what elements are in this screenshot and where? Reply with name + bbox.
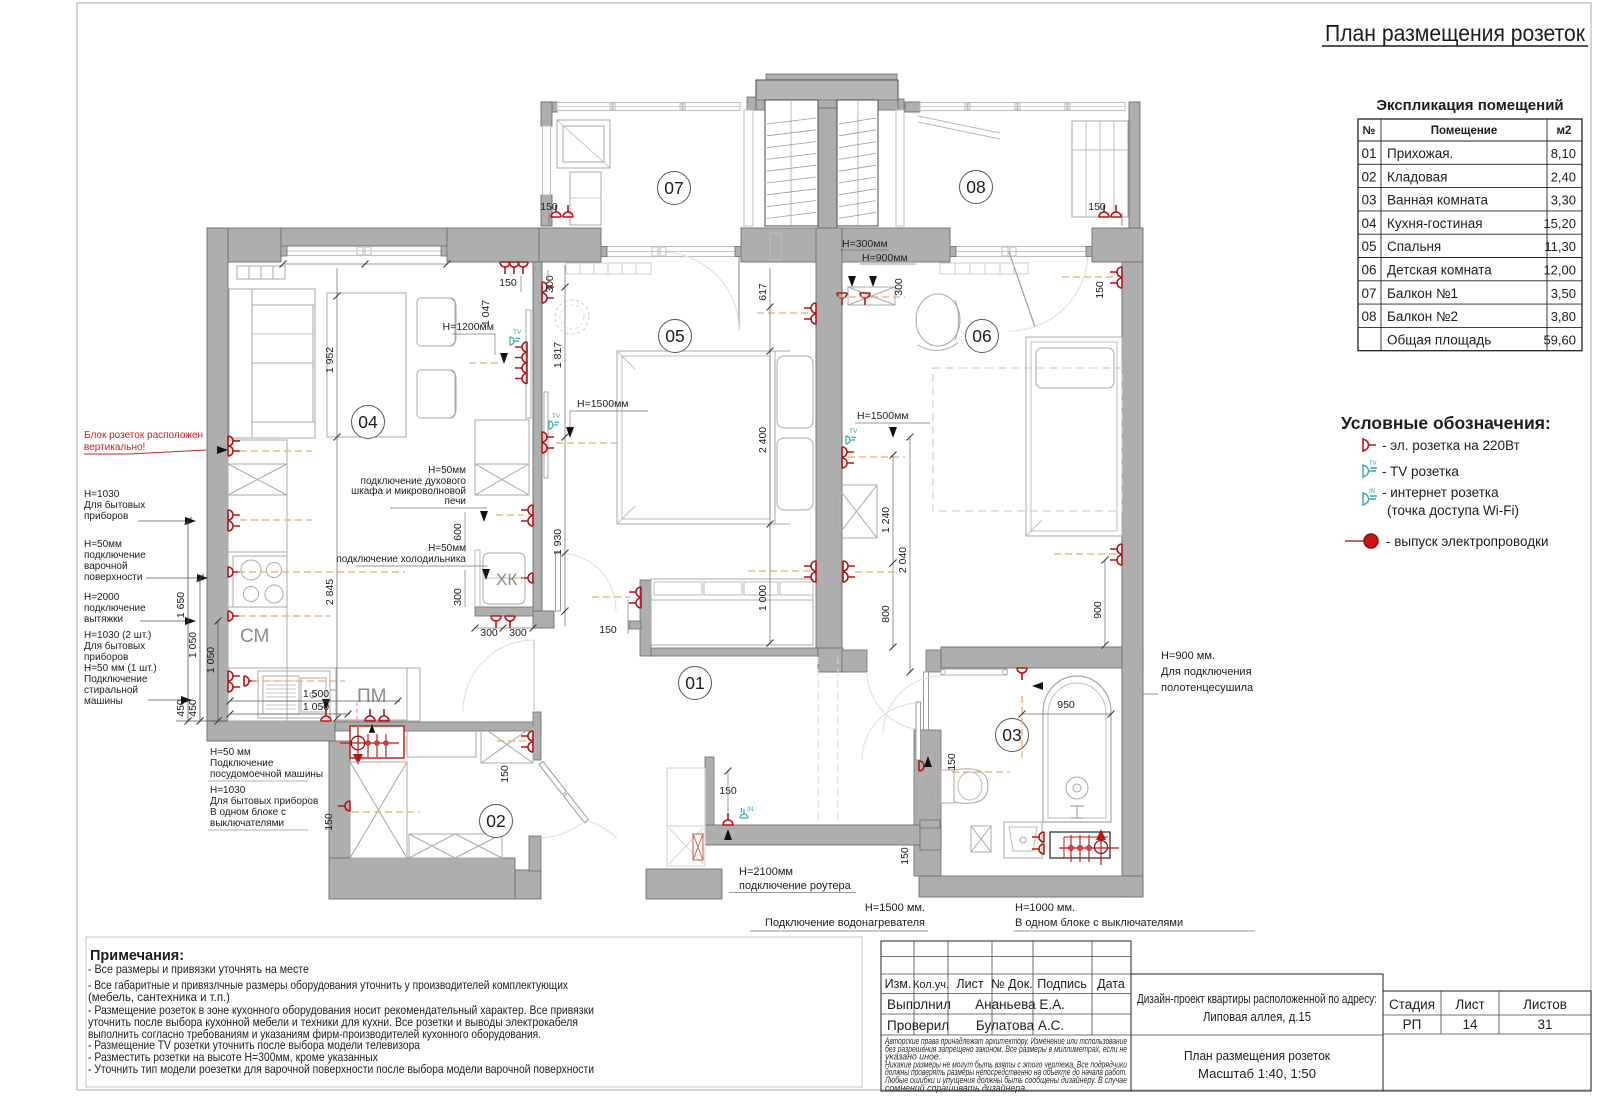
svg-text:03: 03	[1361, 193, 1376, 208]
svg-text:1 050: 1 050	[205, 647, 217, 673]
svg-text:600: 600	[452, 523, 464, 541]
svg-text:Н=2100мм: Н=2100мм	[739, 866, 793, 878]
svg-text:- выпуск электропроводки: - выпуск электропроводки	[1386, 534, 1549, 549]
svg-text:подключение: подключение	[84, 603, 146, 614]
svg-text:Подключение: Подключение	[210, 758, 274, 769]
svg-text:Масштаб 1:40, 1:50: Масштаб 1:40, 1:50	[1198, 1067, 1316, 1081]
svg-text:Для бытовых: Для бытовых	[84, 499, 145, 511]
svg-text:05: 05	[665, 326, 684, 346]
svg-text:сомнений спрашивать дизайнера.: сомнений спрашивать дизайнера.	[885, 1083, 1028, 1093]
svg-text:Ванная комната: Ванная комната	[1387, 193, 1489, 208]
svg-text:Для подключения: Для подключения	[1161, 666, 1252, 678]
svg-text:2,40: 2,40	[1551, 169, 1576, 184]
svg-text:Кол.уч.: Кол.уч.	[913, 979, 949, 991]
svg-text:TV: TV	[1369, 461, 1377, 467]
svg-text:1 500: 1 500	[303, 688, 329, 700]
svg-text:№: №	[1363, 125, 1376, 137]
svg-text:2 845: 2 845	[324, 579, 336, 605]
svg-text:- Все размеры и привязки уточн: - Все размеры и привязки уточнять на мес…	[88, 962, 309, 976]
svg-text:1 240: 1 240	[880, 507, 892, 533]
svg-text:Н=1030: Н=1030	[84, 489, 120, 500]
svg-text:TV: TV	[849, 428, 858, 435]
svg-text:Ананьева Е.А.: Ананьева Е.А.	[975, 997, 1065, 1012]
svg-text:11,30: 11,30	[1544, 239, 1576, 254]
svg-text:2 040: 2 040	[897, 547, 909, 573]
svg-text:01: 01	[685, 673, 704, 693]
svg-text:Блок розеток расположен: Блок розеток расположен	[84, 430, 203, 441]
svg-text:07: 07	[664, 178, 683, 198]
svg-text:1 817: 1 817	[552, 342, 564, 368]
svg-text:Для бытовых: Для бытовых	[84, 640, 145, 652]
svg-text:Для бытовых приборов: Для бытовых приборов	[210, 795, 318, 807]
svg-text:План размещения розеток: План размещения розеток	[1325, 20, 1586, 46]
svg-text:Проверил: Проверил	[887, 1018, 949, 1033]
svg-text:950: 950	[1057, 699, 1075, 711]
svg-text:04: 04	[1361, 216, 1377, 231]
svg-text:ПМ: ПМ	[357, 686, 386, 707]
svg-text:15,20: 15,20	[1543, 216, 1576, 231]
svg-text:2 400: 2 400	[757, 427, 769, 453]
svg-text:Дата: Дата	[1097, 977, 1125, 991]
svg-text:150: 150	[1088, 201, 1106, 213]
svg-text:Н=300мм: Н=300мм	[842, 238, 888, 250]
svg-text:03: 03	[1002, 725, 1021, 745]
svg-text:01: 01	[1361, 146, 1376, 161]
svg-text:150: 150	[540, 201, 558, 213]
svg-text:12,00: 12,00	[1543, 263, 1576, 278]
svg-text:TV: TV	[513, 329, 522, 336]
svg-text:поверхности: поверхности	[84, 572, 142, 583]
svg-text:Кладовая: Кладовая	[1387, 169, 1447, 184]
svg-text:1 047: 1 047	[480, 300, 492, 326]
svg-text:1 050: 1 050	[303, 701, 329, 713]
svg-text:08: 08	[1361, 309, 1376, 324]
svg-text:печи: печи	[445, 496, 466, 507]
svg-text:3,30: 3,30	[1551, 193, 1576, 208]
svg-text:06: 06	[1361, 263, 1376, 278]
svg-text:подключение: подключение	[84, 550, 146, 561]
svg-text:Выполнил: Выполнил	[887, 997, 951, 1012]
svg-text:(точка доступа Wi-Fi): (точка доступа Wi-Fi)	[1387, 503, 1519, 518]
svg-text:Н=50мм: Н=50мм	[428, 465, 466, 476]
svg-text:Лист: Лист	[956, 977, 983, 991]
svg-text:м2: м2	[1557, 125, 1572, 137]
svg-text:План размещения розеток: План размещения розеток	[1184, 1049, 1330, 1063]
svg-text:Балкон №2: Балкон №2	[1387, 309, 1458, 324]
svg-text:IN: IN	[1369, 489, 1375, 495]
svg-text:Булатова А.С.: Булатова А.С.	[976, 1018, 1064, 1033]
svg-text:150: 150	[323, 813, 335, 831]
svg-text:машины: машины	[84, 696, 123, 707]
svg-text:Н=50 мм (1 шт.): Н=50 мм (1 шт.)	[84, 663, 157, 674]
svg-text:- эл. розетка на 220Вт: - эл. розетка на 220Вт	[1382, 438, 1520, 453]
svg-text:3,50: 3,50	[1551, 286, 1576, 301]
svg-text:300: 300	[480, 627, 498, 639]
svg-text:приборов: приборов	[84, 510, 128, 522]
svg-text:31: 31	[1537, 1017, 1552, 1032]
svg-text:варочной: варочной	[84, 561, 128, 572]
svg-text:Прихожая.: Прихожая.	[1387, 146, 1453, 161]
svg-text:02: 02	[1361, 169, 1376, 184]
svg-text:подключение роутера: подключение роутера	[739, 880, 852, 892]
svg-text:450: 450	[175, 699, 187, 717]
svg-text:Стадия: Стадия	[1389, 997, 1435, 1012]
svg-text:59,60: 59,60	[1543, 332, 1576, 347]
svg-text:02: 02	[486, 811, 505, 831]
svg-text:приборов: приборов	[84, 651, 128, 663]
svg-text:3,80: 3,80	[1551, 309, 1576, 324]
svg-text:Н=1030: Н=1030	[210, 785, 246, 796]
svg-text:Н=50мм: Н=50мм	[84, 539, 122, 550]
svg-text:подключение холодильника: подключение холодильника	[336, 554, 466, 565]
svg-text:Условные обозначения:: Условные обозначения:	[1341, 413, 1551, 433]
svg-text:Н=1500мм: Н=1500мм	[577, 398, 629, 410]
svg-text:150: 150	[499, 277, 517, 289]
svg-text:Кухня-гостиная: Кухня-гостиная	[1387, 216, 1483, 231]
svg-text:8,10: 8,10	[1551, 146, 1576, 161]
svg-text:08: 08	[966, 177, 985, 197]
svg-text:В одном блоке с выключателями: В одном блоке с выключателями	[1015, 917, 1183, 929]
svg-text:150: 150	[899, 847, 911, 865]
svg-text:617: 617	[757, 283, 769, 301]
svg-text:04: 04	[358, 412, 378, 432]
svg-text:TV: TV	[552, 413, 561, 420]
svg-text:- Уточнить тип модели роезетки: - Уточнить тип модели роезетки для вароч…	[88, 1062, 594, 1076]
svg-text:Н=1500мм: Н=1500мм	[857, 410, 909, 422]
svg-text:05: 05	[1361, 239, 1376, 254]
svg-text:1 000: 1 000	[757, 585, 769, 611]
svg-text:Экспликация помещений: Экспликация помещений	[1376, 97, 1563, 114]
svg-text:1 952: 1 952	[324, 347, 336, 373]
svg-text:Н=900 мм.: Н=900 мм.	[1161, 650, 1215, 662]
svg-text:450: 450	[187, 699, 199, 717]
svg-text:Лист: Лист	[1455, 997, 1484, 1012]
svg-text:полотенцесушила: полотенцесушила	[1161, 682, 1254, 694]
svg-text:- интернет розетка: - интернет розетка	[1382, 485, 1499, 500]
svg-text:150: 150	[599, 624, 617, 636]
svg-text:1 930: 1 930	[552, 529, 564, 555]
svg-text:Балкон №1: Балкон №1	[1387, 286, 1458, 301]
svg-text:06: 06	[972, 326, 991, 346]
svg-text:1 050: 1 050	[187, 632, 199, 658]
svg-text:Подключение: Подключение	[84, 674, 148, 685]
svg-text:Н=1030 (2 шт.): Н=1030 (2 шт.)	[84, 630, 151, 641]
svg-text:Н=50мм: Н=50мм	[428, 543, 466, 554]
svg-text:Н=50 мм: Н=50 мм	[210, 747, 251, 758]
svg-text:Н=1000 мм.: Н=1000 мм.	[1015, 902, 1075, 914]
svg-text:Спальня: Спальня	[1387, 239, 1441, 254]
svg-text:07: 07	[1361, 286, 1376, 301]
svg-text:900: 900	[1092, 601, 1104, 619]
svg-text:Общая площадь: Общая площадь	[1387, 332, 1491, 347]
svg-text:Помещение: Помещение	[1431, 125, 1498, 137]
svg-text:РП: РП	[1403, 1017, 1422, 1032]
svg-text:Подпись: Подпись	[1037, 977, 1086, 991]
svg-text:СМ: СМ	[240, 626, 269, 647]
svg-text:вертикально!: вертикально!	[84, 442, 145, 453]
svg-text:IN: IN	[747, 806, 754, 813]
svg-text:Подключение водонагревателя: Подключение водонагревателя	[765, 917, 925, 929]
svg-text:выключателями: выключателями	[210, 818, 284, 829]
svg-text:300: 300	[893, 278, 905, 296]
svg-text:Липовая аллея, д.15: Липовая аллея, д.15	[1203, 1010, 1311, 1024]
svg-text:300: 300	[509, 627, 527, 639]
svg-text:Детская комната: Детская комната	[1387, 263, 1492, 278]
svg-text:14: 14	[1462, 1017, 1478, 1032]
svg-text:150: 150	[946, 753, 958, 771]
svg-text:посудомоечной машины: посудомоечной машины	[210, 769, 323, 780]
svg-text:Листов: Листов	[1523, 997, 1567, 1012]
svg-text:Н=1500 мм.: Н=1500 мм.	[865, 902, 925, 914]
svg-text:ХК: ХК	[496, 570, 517, 589]
svg-text:1 650: 1 650	[175, 592, 187, 618]
svg-text:Н=900мм: Н=900мм	[862, 252, 908, 264]
svg-text:вытяжки: вытяжки	[84, 614, 123, 625]
svg-text:- TV розетка: - TV розетка	[1382, 464, 1459, 479]
svg-text:300: 300	[544, 275, 556, 293]
svg-text:150: 150	[499, 765, 511, 783]
svg-text:800: 800	[880, 605, 892, 623]
svg-text:В одном блоке с: В одном блоке с	[210, 806, 286, 818]
svg-text:150: 150	[1094, 281, 1106, 299]
svg-text:стиральной: стиральной	[84, 685, 138, 696]
svg-text:Дизайн-проект квартиры располо: Дизайн-проект квартиры расположенной по …	[1137, 992, 1377, 1006]
svg-text:№ Док.: № Док.	[991, 977, 1032, 991]
svg-text:(мебель, сантехника и т.п.): (мебель, сантехника и т.п.)	[88, 990, 230, 1004]
svg-text:Н=2000: Н=2000	[84, 592, 120, 603]
svg-text:300: 300	[452, 588, 464, 606]
svg-text:Изм.: Изм.	[885, 977, 912, 991]
